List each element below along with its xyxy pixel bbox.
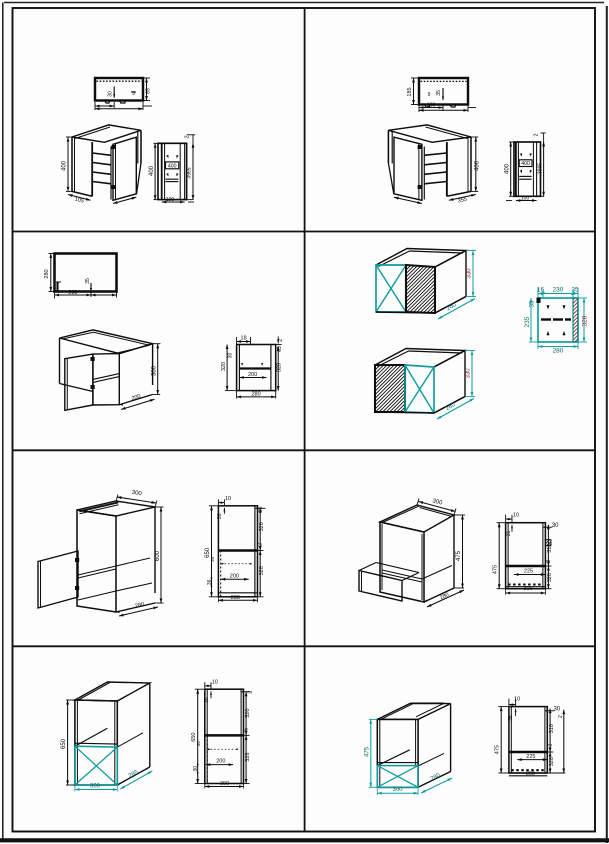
svg-text:2: 2 xyxy=(546,560,552,563)
svg-text:300: 300 xyxy=(220,781,229,787)
svg-text:320: 320 xyxy=(221,362,227,371)
svg-text:35: 35 xyxy=(85,278,91,284)
svg-text:185: 185 xyxy=(407,87,413,96)
svg-text:2: 2 xyxy=(548,743,554,746)
svg-text:9: 9 xyxy=(428,92,431,98)
svg-text:300: 300 xyxy=(152,365,158,376)
svg-text:200: 200 xyxy=(216,759,225,765)
svg-text:280: 280 xyxy=(231,595,240,601)
svg-text:330: 330 xyxy=(467,268,473,279)
svg-text:300: 300 xyxy=(526,771,535,777)
svg-text:300: 300 xyxy=(90,784,101,790)
svg-text:400: 400 xyxy=(504,163,510,174)
svg-text:400: 400 xyxy=(168,164,177,170)
svg-text:400: 400 xyxy=(62,160,68,171)
svg-text:520: 520 xyxy=(245,709,251,718)
svg-text:3965: 3965 xyxy=(187,167,193,178)
svg-text:320: 320 xyxy=(277,363,283,372)
svg-text:330: 330 xyxy=(466,368,472,379)
svg-text:328: 328 xyxy=(549,757,555,766)
svg-text:2: 2 xyxy=(184,135,190,138)
svg-text:35: 35 xyxy=(196,741,201,747)
svg-text:10: 10 xyxy=(212,680,218,686)
svg-text:3965: 3965 xyxy=(537,163,543,174)
svg-text:18: 18 xyxy=(241,336,247,342)
svg-text:100: 100 xyxy=(427,102,436,108)
svg-text:10: 10 xyxy=(514,696,520,702)
svg-text:2: 2 xyxy=(278,339,284,342)
svg-text:2: 2 xyxy=(534,133,540,136)
svg-text:475: 475 xyxy=(493,565,499,574)
svg-text:310: 310 xyxy=(549,724,555,733)
svg-text:200: 200 xyxy=(248,372,257,378)
svg-text:30: 30 xyxy=(204,697,210,703)
svg-text:30: 30 xyxy=(193,766,199,772)
svg-text:2: 2 xyxy=(248,691,254,694)
svg-text:400: 400 xyxy=(474,160,480,171)
svg-text:230: 230 xyxy=(553,287,564,294)
svg-text:100: 100 xyxy=(166,197,175,203)
svg-text:36: 36 xyxy=(508,715,514,721)
svg-text:235: 235 xyxy=(524,316,531,327)
svg-text:30: 30 xyxy=(108,91,114,97)
svg-text:30: 30 xyxy=(552,523,559,529)
svg-text:310: 310 xyxy=(547,544,553,553)
svg-text:328: 328 xyxy=(259,566,265,575)
svg-text:300: 300 xyxy=(523,586,532,592)
svg-text:200: 200 xyxy=(230,573,239,579)
svg-text:328: 328 xyxy=(547,573,553,582)
svg-text:280: 280 xyxy=(553,348,564,355)
svg-text:100: 100 xyxy=(521,195,530,201)
svg-text:280: 280 xyxy=(44,269,50,278)
svg-text:400: 400 xyxy=(521,161,530,167)
svg-text:475: 475 xyxy=(456,550,462,561)
svg-text:65: 65 xyxy=(146,88,152,94)
svg-text:328: 328 xyxy=(582,315,589,326)
svg-text:650: 650 xyxy=(61,738,67,749)
svg-text:650: 650 xyxy=(191,733,197,742)
svg-text:36: 36 xyxy=(207,579,213,585)
svg-text:16: 16 xyxy=(537,287,545,294)
svg-text:475: 475 xyxy=(495,745,501,754)
svg-text:328: 328 xyxy=(245,753,251,762)
svg-text:600: 600 xyxy=(155,550,161,561)
svg-text:35: 35 xyxy=(436,90,442,96)
svg-text:30: 30 xyxy=(553,707,560,713)
svg-text:10: 10 xyxy=(513,513,519,519)
svg-text:35: 35 xyxy=(506,530,512,536)
svg-text:35: 35 xyxy=(571,287,579,294)
svg-text:280: 280 xyxy=(252,392,261,398)
svg-text:5: 5 xyxy=(244,728,250,731)
svg-text:475: 475 xyxy=(364,746,370,757)
svg-text:225: 225 xyxy=(526,754,535,760)
svg-text:650: 650 xyxy=(205,547,211,558)
svg-text:2: 2 xyxy=(558,715,564,718)
svg-text:2: 2 xyxy=(258,543,264,546)
svg-text:10: 10 xyxy=(225,496,231,502)
svg-text:30: 30 xyxy=(228,353,234,359)
svg-text:225: 225 xyxy=(524,569,533,575)
svg-text:35: 35 xyxy=(210,556,215,562)
svg-text:30: 30 xyxy=(217,513,223,519)
svg-text:300: 300 xyxy=(392,787,403,793)
svg-text:400: 400 xyxy=(149,165,155,176)
svg-text:320: 320 xyxy=(259,522,265,531)
svg-text:230: 230 xyxy=(68,290,77,296)
